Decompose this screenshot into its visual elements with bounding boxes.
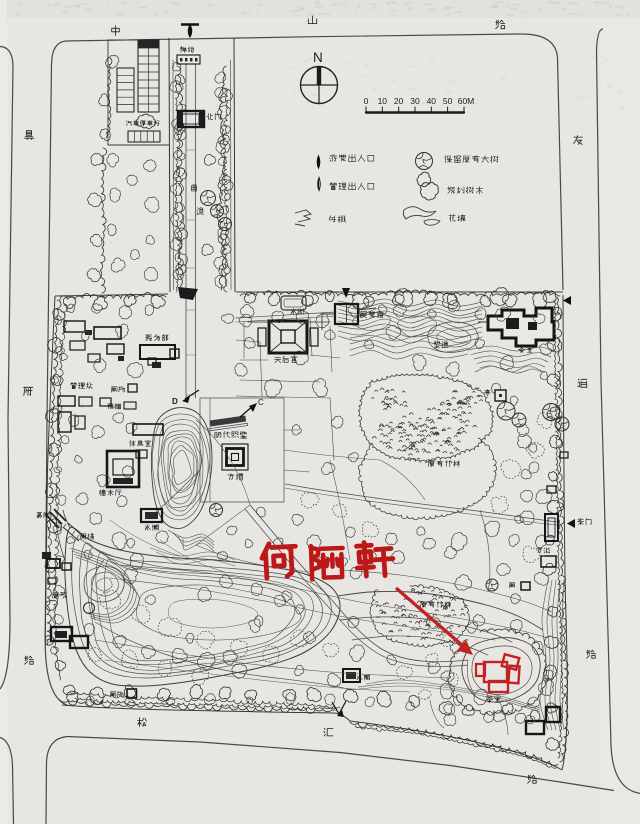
svg-text:N: N [313, 50, 323, 65]
svg-text:10: 10 [378, 96, 388, 106]
svg-text:60M: 60M [458, 96, 475, 106]
svg-text:20: 20 [394, 96, 404, 106]
svg-text:50: 50 [443, 96, 453, 106]
svg-text:D: D [172, 397, 178, 406]
svg-text:40: 40 [427, 96, 437, 106]
svg-text:0: 0 [364, 96, 369, 106]
svg-text:30: 30 [410, 96, 420, 106]
svg-text:C: C [258, 398, 264, 407]
